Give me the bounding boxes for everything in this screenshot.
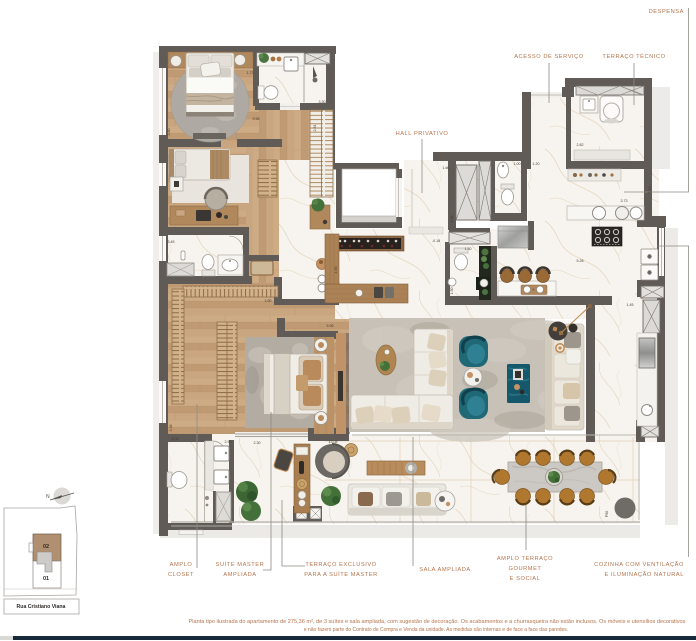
svg-text:P50: P50 [605,511,609,517]
svg-text:Rua Cristiano Viana: Rua Cristiano Viana [17,604,66,610]
svg-text:AMPLIADA: AMPLIADA [223,572,256,578]
svg-text:Planta tipo ilustrada do apart: Planta tipo ilustrada do apartamento de … [189,619,686,625]
svg-text:3.50: 3.50 [265,299,272,303]
svg-text:SUÍTE MASTER: SUÍTE MASTER [216,561,265,568]
svg-text:1.60: 1.60 [443,166,450,170]
svg-text:1.50: 1.50 [450,288,454,295]
svg-text:3.38: 3.38 [169,425,173,432]
svg-text:1.30: 1.30 [465,247,472,251]
svg-text:E SOCIAL: E SOCIAL [510,576,541,582]
svg-text:1.72: 1.72 [247,71,254,75]
svg-text:13.08: 13.08 [329,440,338,444]
svg-text:DESPENSA: DESPENSA [649,9,684,15]
svg-text:e não fazem parte do Contrato: e não fazem parte do Contrato de Compra … [304,627,568,633]
svg-text:1.00: 1.00 [514,162,521,166]
svg-text:9.58: 9.58 [253,117,260,121]
svg-text:2.90: 2.90 [225,440,232,444]
svg-text:01: 01 [43,576,49,582]
svg-text:1.20: 1.20 [533,162,540,166]
svg-text:5.96: 5.96 [327,324,334,328]
svg-text:SALA AMPLIADA: SALA AMPLIADA [419,567,470,573]
svg-text:02: 02 [43,544,49,550]
svg-text:1.45: 1.45 [627,303,634,307]
svg-text:TERRAÇO TÉCNICO: TERRAÇO TÉCNICO [602,53,665,60]
svg-text:COZINHA COM VENTILAÇÃO: COZINHA COM VENTILAÇÃO [594,561,684,568]
svg-text:4.90: 4.90 [334,267,338,274]
svg-text:HALL PRIVATIVO: HALL PRIVATIVO [396,131,449,137]
svg-text:3.79: 3.79 [648,187,652,194]
svg-text:3.45: 3.45 [168,240,175,244]
svg-text:3.73: 3.73 [621,199,628,203]
svg-text:-0.18: -0.18 [432,239,440,243]
svg-text:2.81: 2.81 [313,125,317,132]
svg-text:E ILUMINAÇÃO NATURAL: E ILUMINAÇÃO NATURAL [605,571,684,578]
svg-text:GOURMET: GOURMET [509,566,542,572]
svg-text:2.30: 2.30 [254,441,261,445]
svg-text:PARA A SUÍTE MASTER: PARA A SUÍTE MASTER [304,571,378,578]
svg-text:2.82: 2.82 [577,143,584,147]
svg-text:N: N [46,494,50,500]
svg-text:1.98: 1.98 [450,216,454,223]
svg-text:3.30: 3.30 [319,100,326,104]
svg-text:CLOSET: CLOSET [168,572,194,578]
svg-text:8.00: 8.00 [172,437,179,441]
svg-text:AMPLO TERRAÇO: AMPLO TERRAÇO [497,556,553,562]
svg-text:ACESSO DE SERVIÇO: ACESSO DE SERVIÇO [514,54,584,60]
svg-text:TERRAÇO EXCLUSIVO: TERRAÇO EXCLUSIVO [305,562,376,568]
svg-text:5.28: 5.28 [577,259,584,263]
svg-text:AMPLO: AMPLO [170,562,193,568]
svg-text:3.80: 3.80 [167,129,171,136]
